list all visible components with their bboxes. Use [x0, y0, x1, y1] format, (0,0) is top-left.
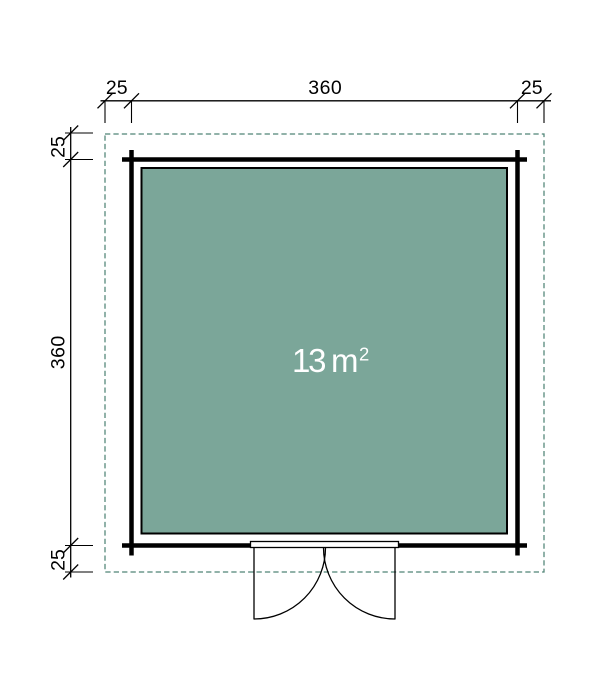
svg-text:25: 25 [521, 77, 543, 99]
svg-text:360: 360 [48, 336, 70, 370]
svg-text:2: 2 [359, 344, 369, 365]
svg-text:13 m: 13 m [292, 342, 359, 379]
svg-text:360: 360 [308, 77, 342, 99]
svg-text:25: 25 [48, 549, 70, 571]
svg-text:25: 25 [106, 77, 128, 99]
svg-text:25: 25 [48, 136, 70, 158]
